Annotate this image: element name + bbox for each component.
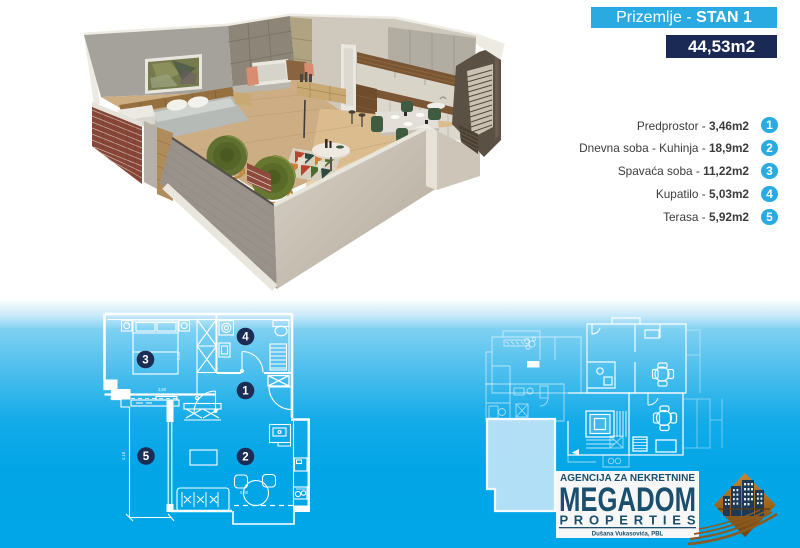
svg-text:P R O P E R T I E S: P R O P E R T I E S — [560, 513, 696, 528]
svg-text:Dušana Vukasovića, PBL: Dušana Vukasovića, PBL — [592, 532, 664, 538]
svg-text:1: 1 — [242, 386, 249, 398]
svg-text:4: 4 — [242, 332, 249, 344]
svg-text:3,60: 3,60 — [158, 387, 167, 392]
svg-text:5: 5 — [143, 451, 150, 463]
svg-text:2: 2 — [242, 452, 248, 464]
svg-text:0,60: 0,60 — [240, 490, 249, 495]
svg-text:4,18: 4,18 — [121, 451, 126, 460]
svg-text:3: 3 — [142, 355, 148, 367]
svg-text:2,40: 2,40 — [176, 351, 181, 360]
